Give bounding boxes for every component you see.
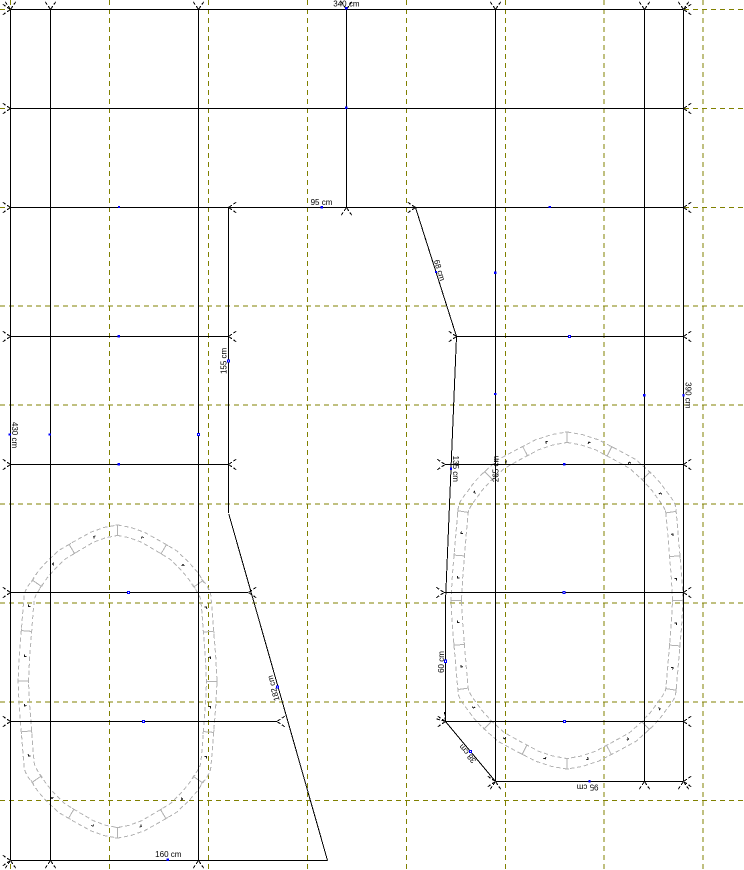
svg-text:95 cm: 95 cm [311, 198, 333, 207]
svg-text:390 cm: 390 cm [683, 382, 692, 409]
svg-text:135 cm: 135 cm [451, 456, 460, 483]
svg-text:160 cm: 160 cm [155, 850, 182, 859]
svg-text:60 cm: 60 cm [437, 651, 446, 673]
svg-text:340 cm: 340 cm [333, 0, 360, 9]
svg-text:95 cm: 95 cm [576, 782, 598, 791]
svg-text:265 cm: 265 cm [492, 456, 501, 483]
svg-text:430 cm: 430 cm [10, 422, 19, 449]
svg-text:155 cm: 155 cm [220, 347, 229, 374]
